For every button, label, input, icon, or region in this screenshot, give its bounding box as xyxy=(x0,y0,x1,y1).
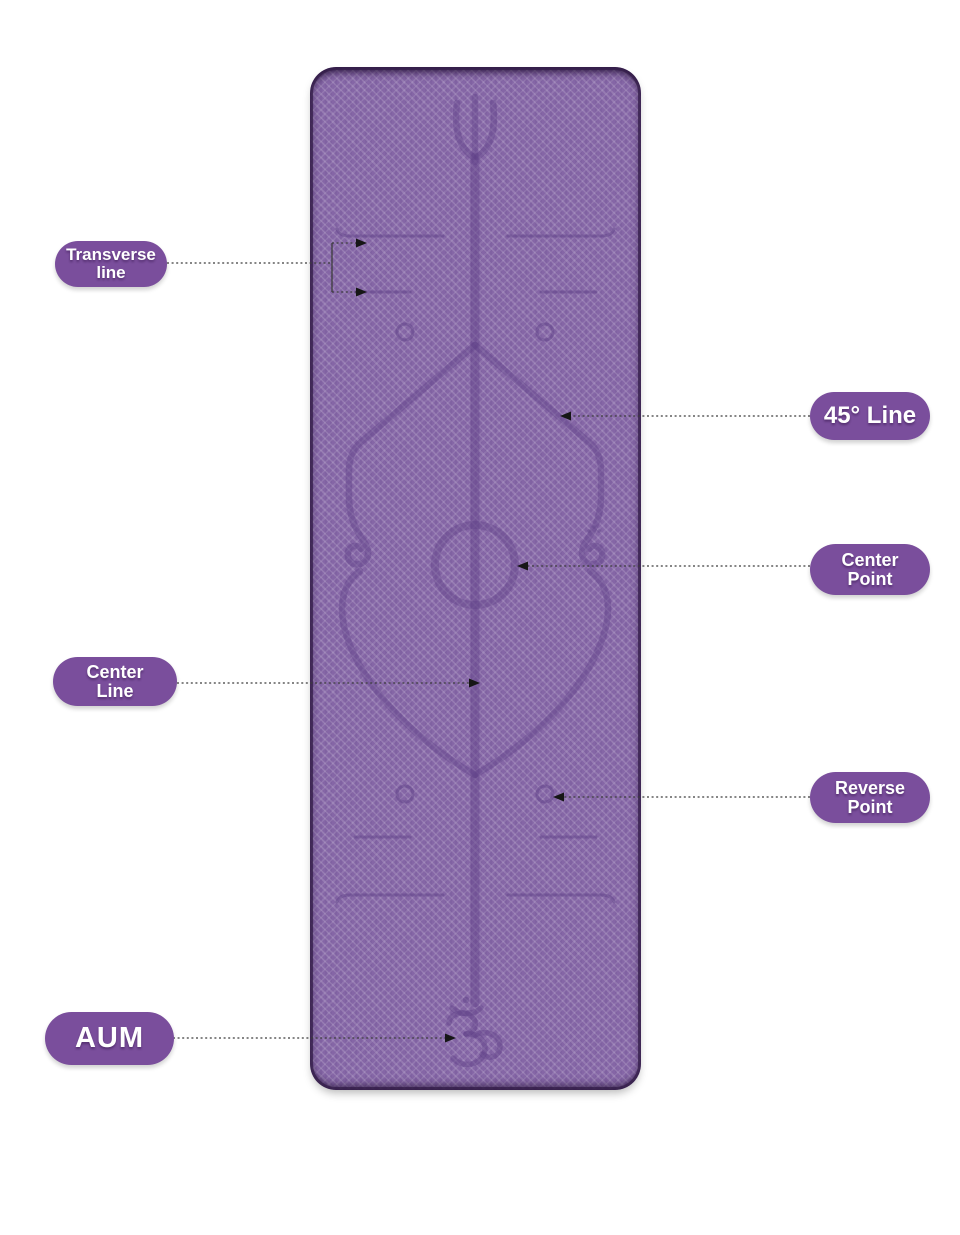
label-text: Line xyxy=(96,682,133,701)
label-transverse-line: Transverse line xyxy=(55,241,167,287)
label-text: Center xyxy=(841,551,898,570)
label-text: Point xyxy=(848,798,893,817)
label-text: Reverse xyxy=(835,779,905,798)
yoga-mat xyxy=(310,67,641,1090)
label-text: line xyxy=(96,264,125,282)
trident-icon xyxy=(456,97,494,162)
label-45-line: 45° Line xyxy=(810,392,930,440)
label-text: Transverse xyxy=(66,246,156,264)
label-text: 45° Line xyxy=(824,404,916,429)
label-text: AUM xyxy=(75,1023,144,1053)
label-center-point: Center Point xyxy=(810,544,930,595)
label-center-line: Center Line xyxy=(53,657,177,706)
yoga-mat-infographic: Transverse line 45° Line Center Point Ce… xyxy=(0,0,960,1235)
label-reverse-point: Reverse Point xyxy=(810,772,930,823)
label-text: Center xyxy=(86,663,143,682)
etched-alignment-design xyxy=(310,67,641,1090)
label-aum: AUM xyxy=(45,1012,174,1065)
label-text: Point xyxy=(848,570,893,589)
